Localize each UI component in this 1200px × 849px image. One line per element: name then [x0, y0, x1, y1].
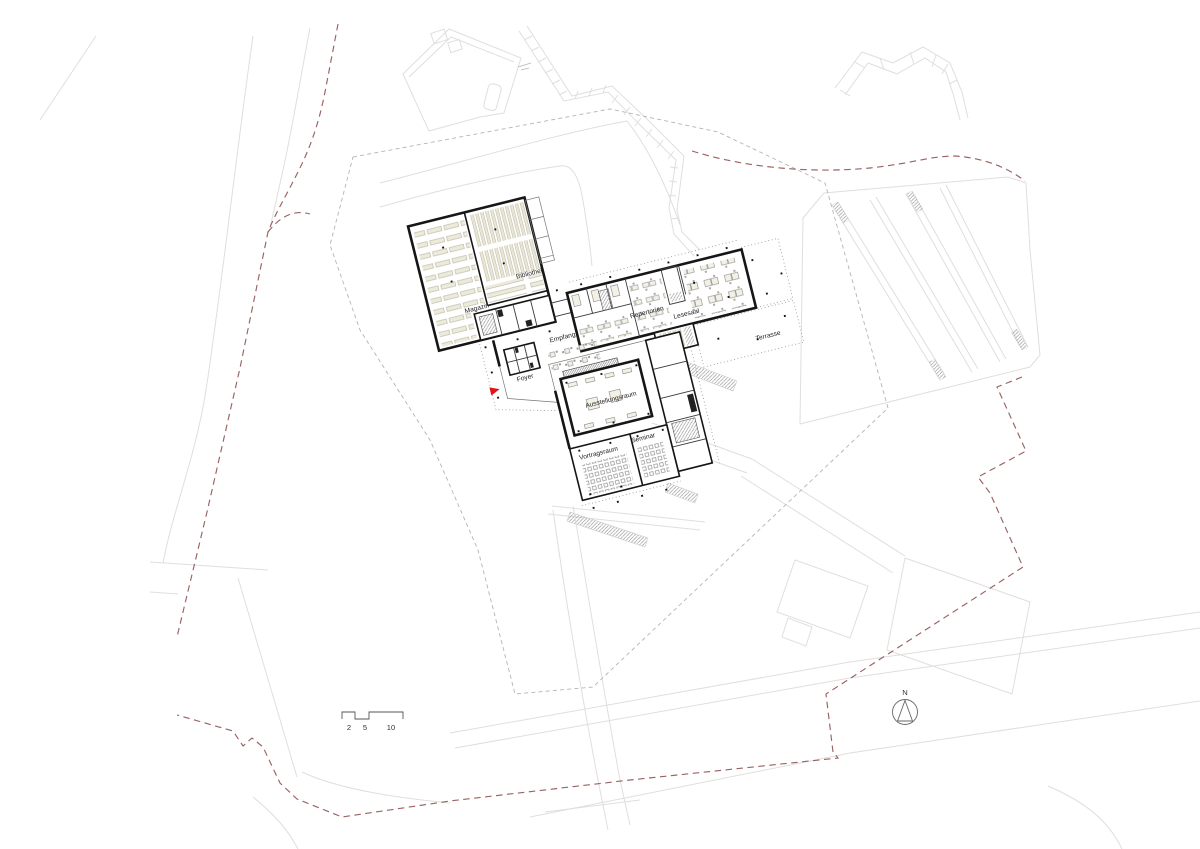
drawing-sheet: Magazin Bibliothek Repertorien Lesesaal …: [0, 0, 1200, 849]
north-arrow-icon: N: [893, 688, 918, 725]
building-plan: Magazin Bibliothek Repertorien Lesesaal …: [408, 140, 831, 536]
block-magazin-bibliothek: Magazin Bibliothek: [408, 194, 569, 351]
north-label: N: [902, 688, 907, 697]
street-name-mark: [518, 63, 531, 70]
label-foyer: Foyer: [516, 372, 535, 383]
scale-tick-5: 5: [363, 723, 367, 732]
scale-tick-2: 2: [347, 723, 351, 732]
label-terrasse: Terrasse: [755, 330, 782, 343]
entrance-arrow-icon: [489, 385, 500, 395]
scale-bar: 2 5 10: [342, 712, 403, 732]
site-plan-svg: Magazin Bibliothek Repertorien Lesesaal …: [0, 0, 1200, 849]
scale-tick-10: 10: [387, 723, 395, 732]
